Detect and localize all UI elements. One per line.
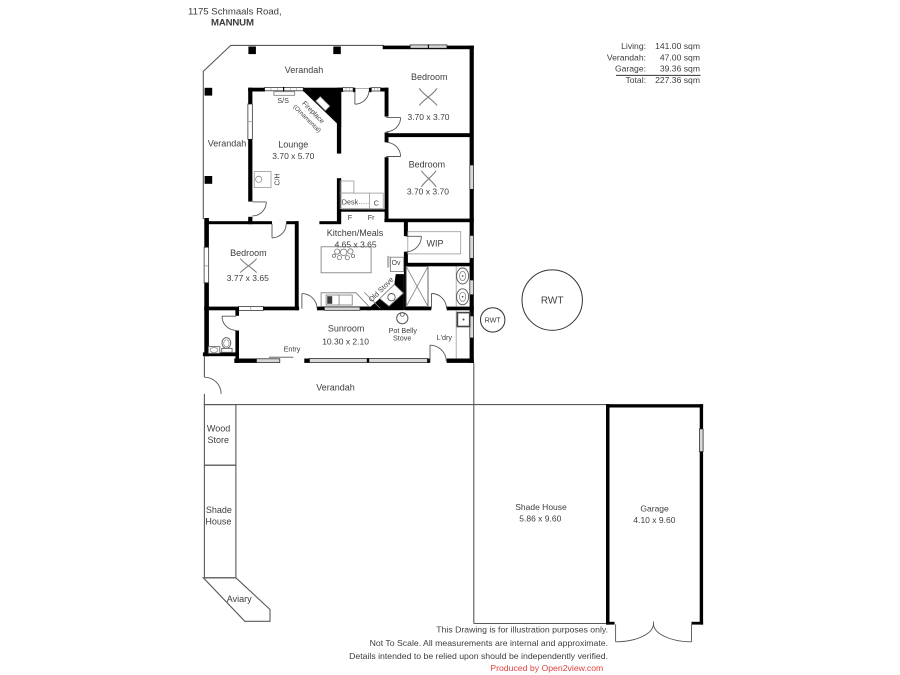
svg-text:This Drawing is for illustrati: This Drawing is for illustration purpose… xyxy=(436,625,608,635)
svg-text:Bedroom: Bedroom xyxy=(411,72,448,82)
svg-text:L'dry: L'dry xyxy=(437,333,453,342)
svg-text:Kitchen/Meals: Kitchen/Meals xyxy=(327,228,384,238)
svg-text:F: F xyxy=(348,213,353,222)
svg-text:Not To Scale. All measurements: Not To Scale. All measurements are inter… xyxy=(370,638,608,648)
svg-text:Verandah: Verandah xyxy=(285,65,324,75)
svg-text:Ov: Ov xyxy=(392,260,401,267)
svg-text:Shade House: Shade House xyxy=(515,502,567,512)
svg-text:Shade: Shade xyxy=(206,505,232,515)
svg-text:4.65 x 3.65: 4.65 x 3.65 xyxy=(335,240,377,250)
svg-text:Garage:: Garage: xyxy=(615,64,646,74)
svg-text:MANNUM: MANNUM xyxy=(211,18,254,29)
svg-text:RWT: RWT xyxy=(485,316,502,325)
svg-text:3.70 x 3.70: 3.70 x 3.70 xyxy=(407,112,449,122)
svg-text:Wood: Wood xyxy=(207,423,230,433)
svg-text:Verandah: Verandah xyxy=(316,383,355,393)
svg-text:C: C xyxy=(374,199,379,208)
svg-text:3.70 x 5.70: 3.70 x 5.70 xyxy=(272,151,314,161)
svg-text:Produced by Open2view.com: Produced by Open2view.com xyxy=(490,663,603,673)
svg-text:Lounge: Lounge xyxy=(278,139,308,149)
svg-text:5.86 x 9.60: 5.86 x 9.60 xyxy=(519,513,561,523)
svg-text:C/H: C/H xyxy=(274,174,281,186)
svg-text:227.36 sqm: 227.36 sqm xyxy=(655,75,700,85)
svg-text:Verandah: Verandah xyxy=(208,139,247,149)
svg-text:Desk: Desk xyxy=(342,197,359,206)
svg-text:47.00 sqm: 47.00 sqm xyxy=(660,52,700,62)
svg-text:Verandah:: Verandah: xyxy=(607,52,646,62)
svg-text:Entry: Entry xyxy=(284,345,301,354)
svg-text:1175 Schmaals Road,: 1175 Schmaals Road, xyxy=(188,7,282,18)
svg-text:Garage: Garage xyxy=(640,503,669,513)
svg-text:Bedroom: Bedroom xyxy=(409,159,446,169)
svg-text:Total:: Total: xyxy=(625,75,646,85)
svg-text:Aviary: Aviary xyxy=(227,594,252,604)
svg-text:141.00 sqm: 141.00 sqm xyxy=(655,41,700,51)
svg-text:3.77 x 3.65: 3.77 x 3.65 xyxy=(227,273,269,283)
svg-text:Sunroom: Sunroom xyxy=(328,324,365,334)
svg-text:3.70 x 3.70: 3.70 x 3.70 xyxy=(407,187,449,197)
svg-text:Bedroom: Bedroom xyxy=(230,248,267,258)
svg-text:Stove: Stove xyxy=(393,334,411,343)
svg-text:Fr: Fr xyxy=(368,213,375,222)
svg-text:4.10 x 9.60: 4.10 x 9.60 xyxy=(633,515,675,525)
svg-text:Details intended to be relied: Details intended to be relied upon shoul… xyxy=(349,651,608,661)
svg-text:House: House xyxy=(205,516,231,526)
svg-text:WIP: WIP xyxy=(427,238,444,248)
svg-text:39.36 sqm: 39.36 sqm xyxy=(660,64,700,74)
svg-text:10.30 x 2.10: 10.30 x 2.10 xyxy=(322,336,369,346)
svg-text:RWT: RWT xyxy=(541,296,564,307)
svg-text:Living:: Living: xyxy=(621,41,646,51)
svg-text:Store: Store xyxy=(208,435,230,445)
svg-text:S/S: S/S xyxy=(277,96,289,105)
